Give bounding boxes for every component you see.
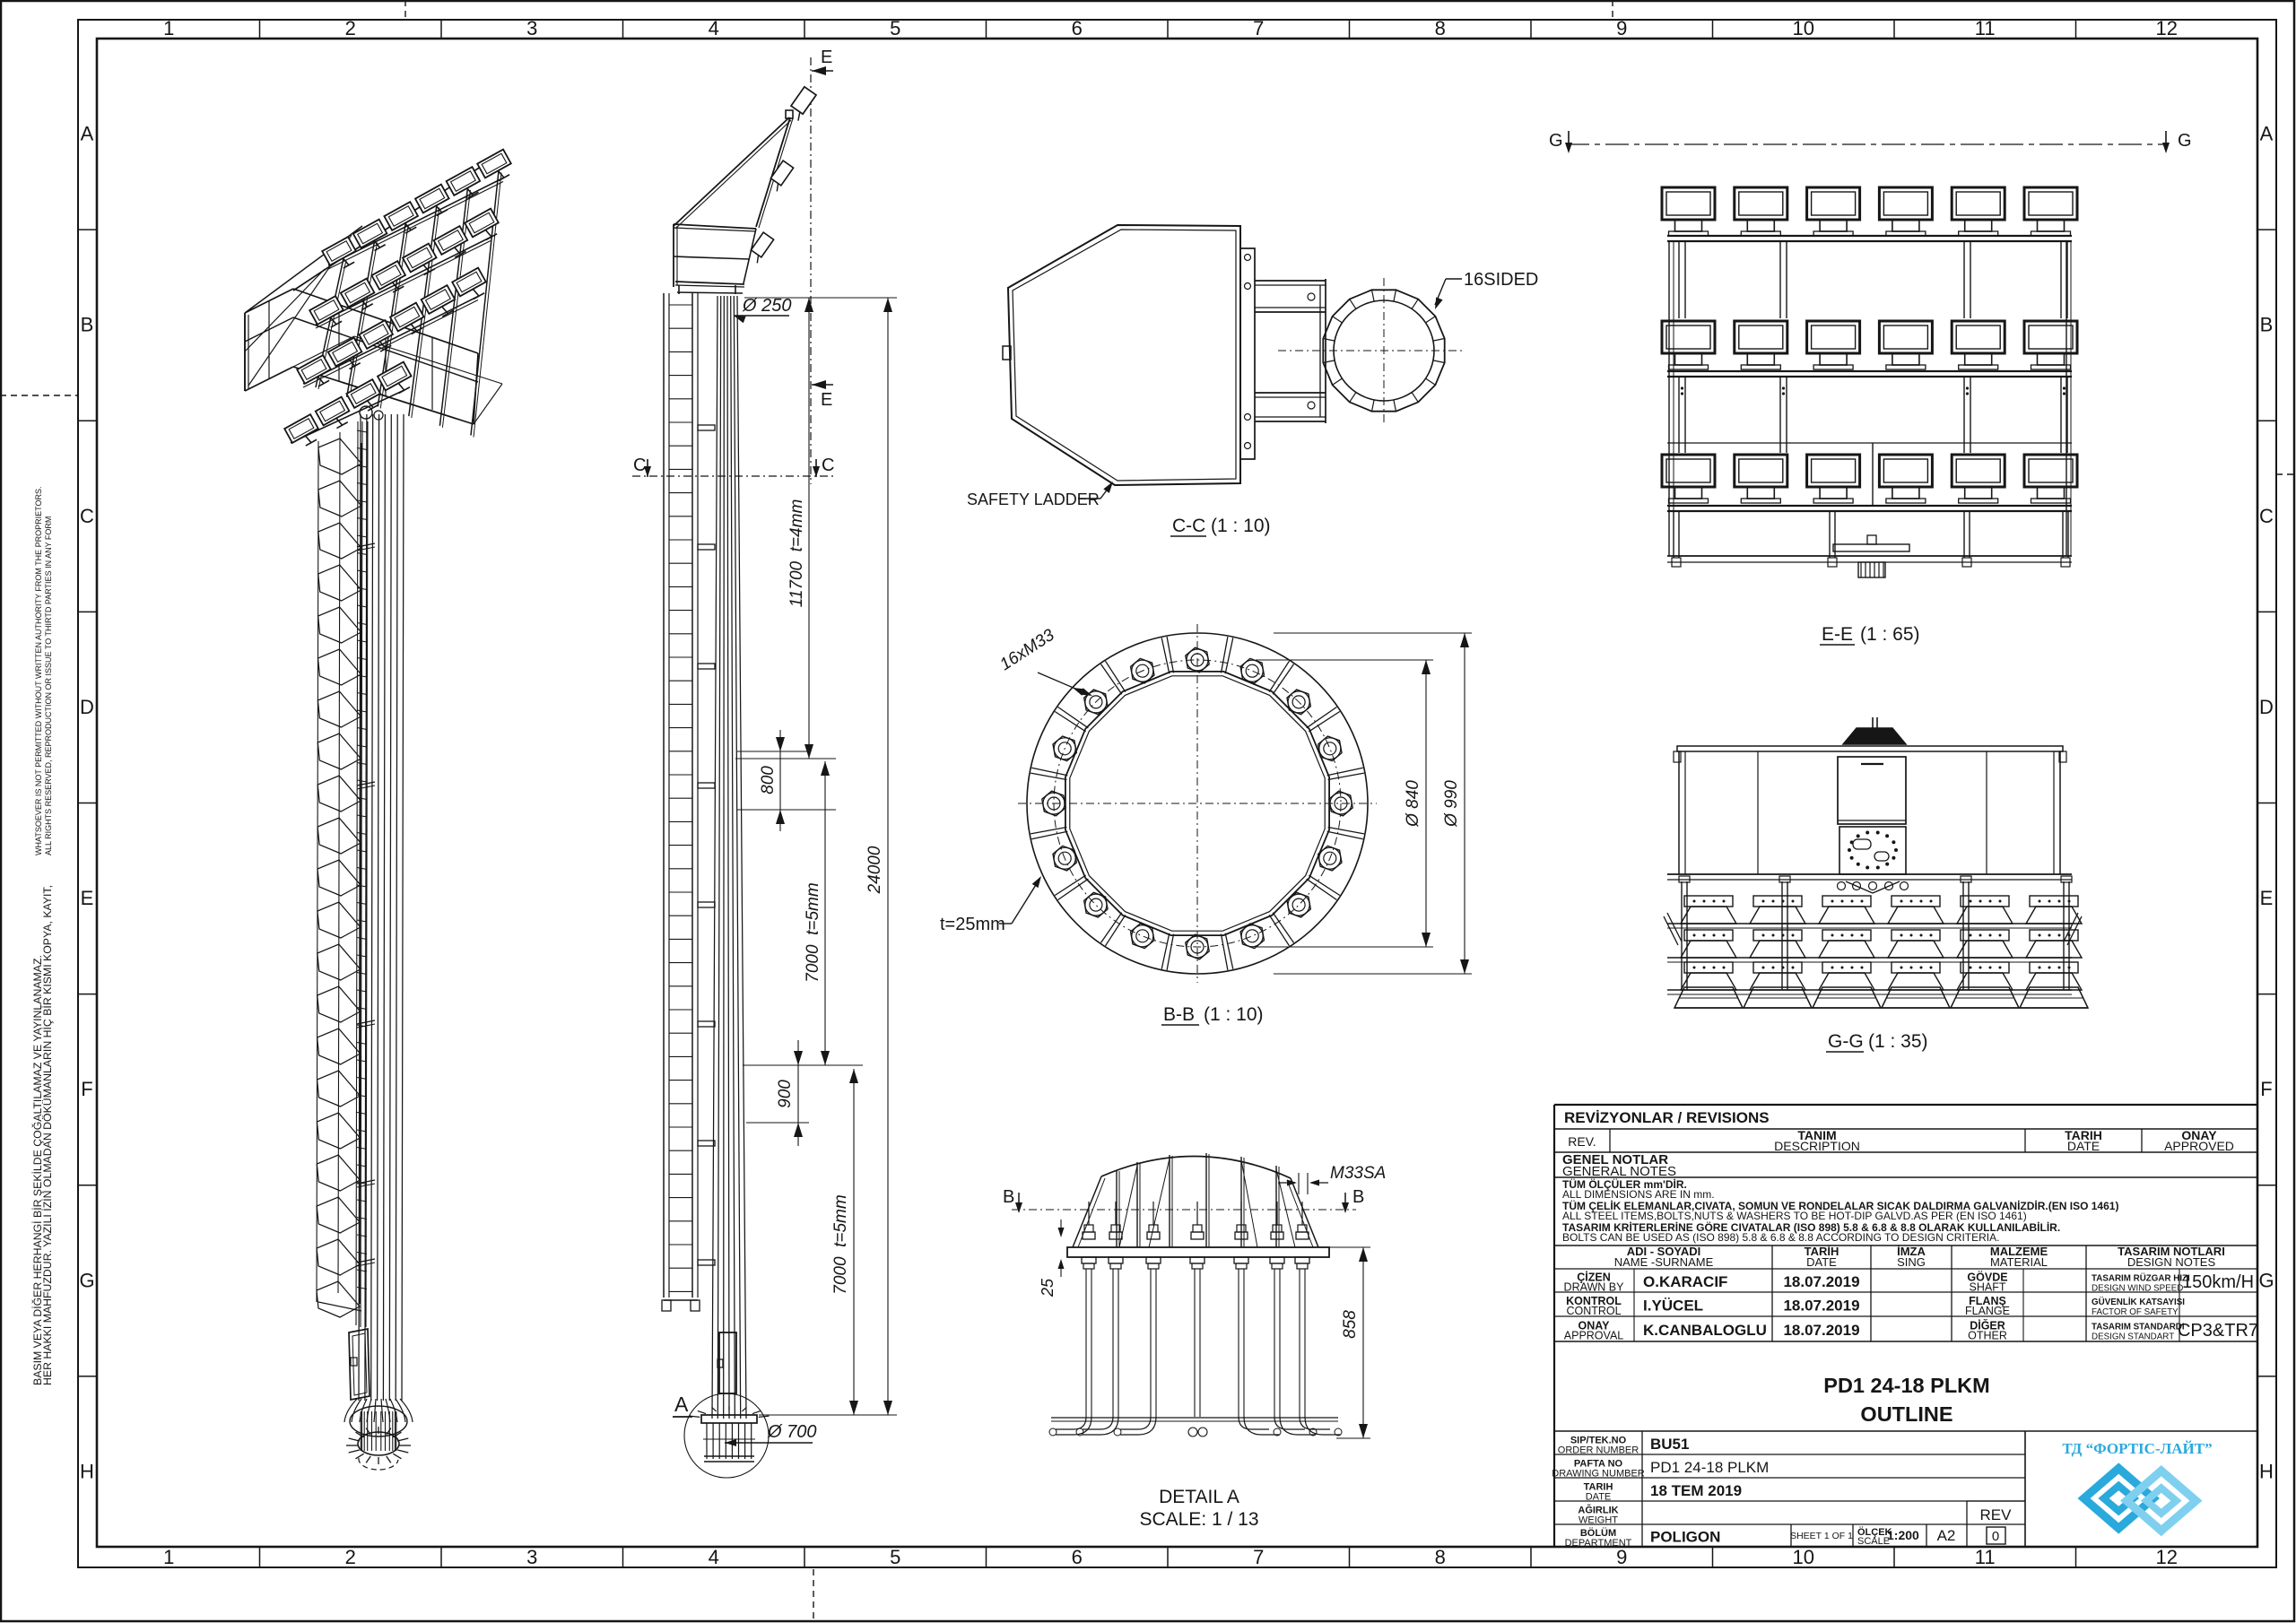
svg-text:PD1 24-18 PLKM: PD1 24-18 PLKM (1823, 1374, 1989, 1397)
svg-text:10: 10 (1793, 1546, 1814, 1568)
svg-text:18.07.2019: 18.07.2019 (1783, 1298, 1859, 1315)
svg-text:7: 7 (1253, 17, 1264, 39)
svg-text:E-E: E-E (1822, 624, 1853, 645)
svg-text:2: 2 (345, 17, 356, 39)
svg-text:G: G (1549, 131, 1563, 151)
svg-text:WHATSOEVER IS NOT PERMITTED WI: WHATSOEVER IS NOT PERMITTED WITHOUT WRIT… (34, 486, 43, 855)
svg-text:DESIGN STANDART: DESIGN STANDART (2092, 1332, 2174, 1342)
svg-text:SHAFT: SHAFT (1970, 1281, 2006, 1294)
svg-text:B: B (81, 314, 94, 336)
svg-text:11: 11 (1975, 1546, 1996, 1568)
svg-text:NAME -SURNAME: NAME -SURNAME (1614, 1255, 1714, 1269)
svg-text:8: 8 (1435, 1546, 1446, 1568)
svg-text:D: D (80, 696, 94, 718)
svg-text:E: E (2260, 887, 2274, 909)
svg-text:2: 2 (345, 1546, 356, 1568)
svg-text:APPROVAL: APPROVAL (1564, 1330, 1624, 1342)
svg-text:REVİZYONLAR / REVISIONS: REVİZYONLAR / REVISIONS (1564, 1109, 1770, 1126)
svg-text:PD1 24-18 PLKM: PD1 24-18 PLKM (1650, 1459, 1769, 1476)
svg-text:BOLTS CAN BE USED AS (ISO 898): BOLTS CAN BE USED AS (ISO 898) 5.8 & 6.8… (1562, 1231, 1999, 1244)
svg-text:16SIDED: 16SIDED (1464, 270, 1538, 290)
svg-text:TASARIM RÜZGAR HIZI: TASARIM RÜZGAR HIZI (2092, 1274, 2190, 1284)
svg-text:BU51: BU51 (1650, 1436, 1689, 1453)
svg-text:3: 3 (526, 1546, 537, 1568)
svg-text:858: 858 (1341, 1310, 1360, 1339)
svg-text:D: D (2259, 696, 2274, 718)
svg-text:1: 1 (163, 17, 174, 39)
svg-text:11700 t=4mm: 11700 t=4mm (787, 499, 806, 608)
svg-text:SAFETY LADDER: SAFETY LADDER (967, 490, 1100, 508)
svg-text:(1 : 35): (1 : 35) (1868, 1031, 1928, 1052)
svg-text:C: C (80, 505, 94, 527)
svg-text:OTHER: OTHER (1968, 1330, 2007, 1342)
svg-text:DESCRIPTION: DESCRIPTION (1774, 1139, 1860, 1153)
svg-text:I.YÜCEL: I.YÜCEL (1643, 1298, 1703, 1315)
svg-text:DATE: DATE (2067, 1139, 2100, 1153)
svg-text:ORDER NUMBER: ORDER NUMBER (1558, 1445, 1639, 1456)
svg-text:B-B: B-B (1163, 1004, 1195, 1025)
svg-text:DATE: DATE (1806, 1255, 1837, 1269)
svg-text:CONTROL: CONTROL (1566, 1305, 1621, 1317)
svg-text:Ø 250: Ø 250 (742, 296, 791, 316)
svg-text:9: 9 (1616, 1546, 1627, 1568)
svg-text:DETAIL A: DETAIL A (1159, 1487, 1239, 1507)
svg-text:12: 12 (2156, 17, 2178, 39)
svg-text:DRAWING NUMBER: DRAWING NUMBER (1552, 1469, 1645, 1480)
svg-text:1:200: 1:200 (1887, 1528, 1919, 1542)
svg-text:F: F (81, 1078, 92, 1100)
svg-text:OUTLINE: OUTLINE (1860, 1402, 1952, 1426)
svg-text:C: C (633, 456, 646, 475)
svg-text:G: G (2178, 131, 2192, 151)
svg-text:18 TEM 2019: 18 TEM 2019 (1650, 1482, 1742, 1499)
svg-text:3: 3 (526, 17, 537, 39)
svg-text:5: 5 (890, 1546, 900, 1568)
svg-text:E: E (821, 390, 832, 410)
svg-text:BASIM VEYA DİĞER HERHANGİ BİR: BASIM VEYA DİĞER HERHANGİ BİR ŞEKİLDE ÇO… (30, 955, 44, 1385)
svg-text:4: 4 (709, 1546, 719, 1568)
svg-text:800: 800 (759, 766, 778, 794)
svg-text:Ø 840: Ø 840 (1404, 780, 1422, 828)
svg-text:ТД “ФОРТІС-ЛАЙТ”: ТД “ФОРТІС-ЛАЙТ” (2062, 1440, 2212, 1457)
svg-text:24000: 24000 (865, 846, 884, 894)
svg-text:4: 4 (709, 17, 719, 39)
svg-text:REV: REV (1980, 1506, 2013, 1523)
svg-text:DRAWN BY: DRAWN BY (1564, 1281, 1625, 1294)
svg-text:SCALE: 1 / 13: SCALE: 1 / 13 (1139, 1509, 1258, 1530)
svg-text:7000 t=5mm: 7000 t=5mm (831, 1194, 850, 1294)
svg-text:ALL RIGHTS RESERVED, REPRODUCT: ALL RIGHTS RESERVED, REPRODUCTION OR ISS… (44, 516, 53, 855)
svg-text:(1 : 10): (1 : 10) (1204, 1004, 1264, 1025)
svg-text:SING: SING (1897, 1255, 1926, 1269)
svg-text:SHEET 1 OF 1: SHEET 1 OF 1 (1790, 1531, 1853, 1541)
svg-text:G-G: G-G (1828, 1031, 1864, 1052)
svg-text:DESIGN WIND SPEED: DESIGN WIND SPEED (2092, 1284, 2183, 1294)
svg-text:(1 : 10): (1 : 10) (1211, 516, 1271, 536)
svg-text:B: B (1003, 1187, 1014, 1207)
svg-text:E: E (81, 887, 94, 909)
svg-text:0: 0 (1992, 1529, 1999, 1544)
svg-text:FLANGE: FLANGE (1965, 1305, 2010, 1317)
svg-text:DESIGN NOTES: DESIGN NOTES (2127, 1255, 2216, 1269)
svg-text:DEPARTMENT: DEPARTMENT (1565, 1538, 1632, 1549)
svg-text:ALL DIMENSIONS ARE IN mm.: ALL DIMENSIONS ARE IN mm. (1562, 1188, 1715, 1201)
svg-text:A: A (81, 123, 94, 145)
svg-text:11: 11 (1975, 17, 1996, 39)
svg-text:7000 t=5mm: 7000 t=5mm (804, 882, 822, 982)
svg-text:M33SA: M33SA (1330, 1164, 1386, 1183)
svg-text:B: B (1352, 1187, 1364, 1207)
svg-text:900: 900 (776, 1080, 795, 1108)
svg-text:Ø 700: Ø 700 (767, 1422, 816, 1442)
svg-text:A: A (2260, 123, 2274, 145)
svg-text:WEIGHT: WEIGHT (1578, 1515, 1618, 1526)
svg-text:MATERIAL: MATERIAL (1990, 1255, 2048, 1269)
svg-text:7: 7 (1253, 1546, 1264, 1568)
svg-text:G: G (79, 1269, 94, 1291)
svg-text:ALL STEEL ITEMS,BOLTS,NUTS & W: ALL STEEL ITEMS,BOLTS,NUTS & WASHERS TO … (1562, 1210, 2027, 1222)
svg-text:H: H (2259, 1460, 2274, 1482)
svg-text:A2: A2 (1937, 1527, 1956, 1544)
svg-text:GÜVENLİK KATSAYISI: GÜVENLİK KATSAYISI (2092, 1298, 2185, 1307)
svg-text:CP3&TR7: CP3&TR7 (2178, 1321, 2258, 1341)
svg-text:12: 12 (2156, 1546, 2178, 1568)
svg-text:5: 5 (890, 17, 900, 39)
svg-text:C: C (822, 456, 834, 475)
svg-text:Ø 990: Ø 990 (1442, 780, 1461, 828)
svg-text:t=25mm: t=25mm (940, 915, 1005, 934)
svg-text:150km/H: 150km/H (2182, 1272, 2254, 1292)
svg-text:SCALE: SCALE (1857, 1536, 1890, 1547)
svg-text:6: 6 (1072, 1546, 1083, 1568)
svg-text:POLIGON: POLIGON (1650, 1529, 1720, 1546)
svg-text:REV.: REV. (1568, 1134, 1596, 1149)
svg-text:C-C: C-C (1172, 516, 1205, 536)
svg-text:DATE: DATE (1586, 1492, 1612, 1503)
svg-text:6: 6 (1072, 17, 1083, 39)
svg-text:10: 10 (1793, 17, 1814, 39)
svg-text:18.07.2019: 18.07.2019 (1783, 1273, 1859, 1290)
svg-text:G: G (2258, 1269, 2274, 1291)
svg-text:25: 25 (1039, 1278, 1057, 1298)
svg-text:APPROVED: APPROVED (2164, 1139, 2234, 1153)
svg-text:B: B (2260, 314, 2274, 336)
svg-text:A: A (674, 1393, 689, 1416)
svg-text:F: F (2260, 1078, 2272, 1100)
svg-text:K.CANBALOGLU: K.CANBALOGLU (1643, 1322, 1767, 1339)
svg-text:FACTOR OF SAFETY: FACTOR OF SAFETY (2092, 1307, 2179, 1317)
svg-text:1: 1 (163, 1546, 174, 1568)
svg-text:(1 : 65): (1 : 65) (1860, 624, 1920, 645)
svg-text:18.07.2019: 18.07.2019 (1783, 1322, 1859, 1339)
svg-text:9: 9 (1616, 17, 1627, 39)
svg-text:E: E (821, 48, 832, 67)
svg-text:C: C (2259, 505, 2274, 527)
svg-text:H: H (80, 1460, 94, 1482)
svg-text:O.KARACIF: O.KARACIF (1643, 1273, 1727, 1290)
svg-text:TASARIM STANDARDI: TASARIM STANDARDI (2092, 1323, 2185, 1332)
svg-text:8: 8 (1435, 17, 1446, 39)
